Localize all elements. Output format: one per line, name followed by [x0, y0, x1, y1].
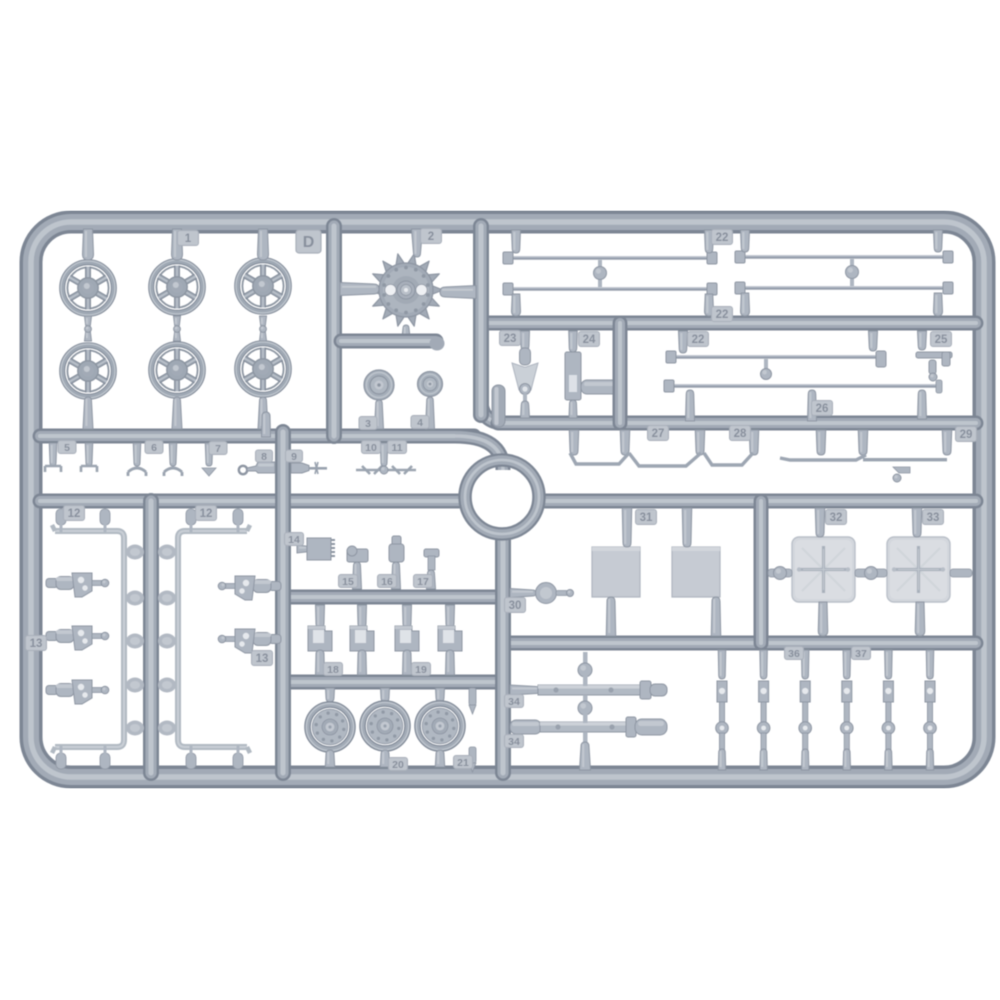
svg-text:14: 14 — [288, 534, 300, 546]
svg-text:8: 8 — [261, 451, 267, 463]
svg-text:12: 12 — [200, 508, 213, 520]
svg-text:21: 21 — [457, 757, 469, 769]
svg-text:17: 17 — [417, 576, 429, 588]
svg-text:23: 23 — [504, 333, 517, 345]
svg-text:4: 4 — [417, 417, 423, 429]
svg-text:19: 19 — [415, 664, 427, 676]
svg-text:20: 20 — [392, 759, 404, 771]
svg-text:34: 34 — [508, 736, 520, 748]
svg-text:12: 12 — [68, 508, 81, 520]
svg-text:16: 16 — [381, 576, 393, 588]
svg-text:29: 29 — [960, 429, 973, 441]
svg-text:2: 2 — [428, 231, 434, 243]
svg-text:13: 13 — [30, 638, 43, 650]
svg-text:30: 30 — [509, 600, 522, 612]
svg-text:7: 7 — [215, 443, 221, 455]
svg-text:1: 1 — [185, 233, 192, 245]
svg-text:27: 27 — [652, 428, 665, 440]
svg-text:22: 22 — [692, 334, 705, 346]
svg-text:34: 34 — [508, 696, 520, 708]
svg-text:10: 10 — [365, 442, 377, 454]
svg-text:11: 11 — [391, 442, 402, 454]
svg-text:22: 22 — [716, 309, 729, 321]
svg-text:3: 3 — [365, 418, 371, 430]
svg-text:37: 37 — [855, 648, 867, 660]
svg-text:5: 5 — [64, 442, 70, 454]
svg-text:32: 32 — [830, 512, 843, 524]
svg-text:D: D — [303, 234, 315, 251]
svg-text:22: 22 — [716, 232, 729, 244]
svg-text:15: 15 — [342, 576, 354, 588]
svg-text:18: 18 — [327, 664, 339, 676]
svg-text:33: 33 — [927, 512, 940, 524]
svg-text:25: 25 — [935, 334, 948, 346]
svg-text:36: 36 — [788, 648, 800, 660]
svg-text:31: 31 — [640, 512, 653, 524]
svg-text:26: 26 — [816, 403, 829, 415]
svg-text:6: 6 — [151, 442, 157, 454]
svg-text:24: 24 — [583, 334, 596, 346]
svg-text:13: 13 — [256, 653, 269, 665]
svg-text:28: 28 — [734, 428, 747, 440]
svg-text:9: 9 — [291, 451, 297, 463]
